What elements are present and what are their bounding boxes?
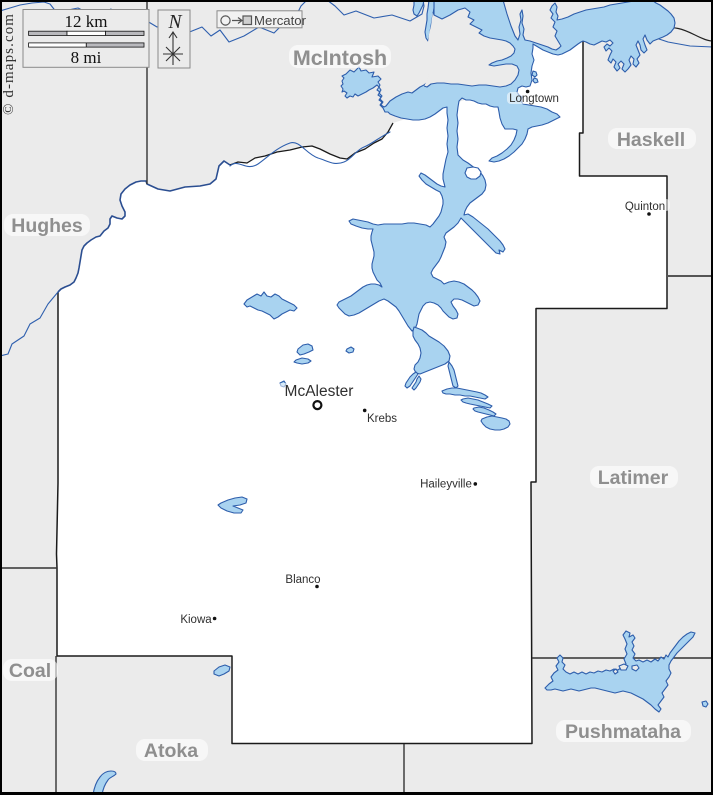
svg-text:© d-maps.com: © d-maps.com [1,13,17,115]
svg-text:Pushmataha: Pushmataha [565,721,681,743]
svg-text:Blanco: Blanco [285,574,320,586]
svg-text:Latimer: Latimer [598,467,669,489]
svg-text:Atoka: Atoka [144,740,198,762]
svg-text:Longtown: Longtown [509,93,559,105]
svg-text:Quinton: Quinton [625,201,665,213]
svg-text:N: N [167,12,182,33]
svg-text:8 mi: 8 mi [71,48,102,67]
svg-text:McIntosh: McIntosh [293,46,387,70]
svg-text:Haileyville: Haileyville [420,479,472,491]
svg-text:Hughes: Hughes [11,215,83,237]
svg-text:Kiowa: Kiowa [180,614,212,626]
svg-text:Haskell: Haskell [617,129,685,151]
svg-text:Krebs: Krebs [367,413,397,425]
svg-text:Coal: Coal [9,660,51,682]
svg-text:Mercator: Mercator [254,13,307,28]
svg-text:McAlester: McAlester [285,383,354,400]
svg-text:12 km: 12 km [65,12,108,31]
